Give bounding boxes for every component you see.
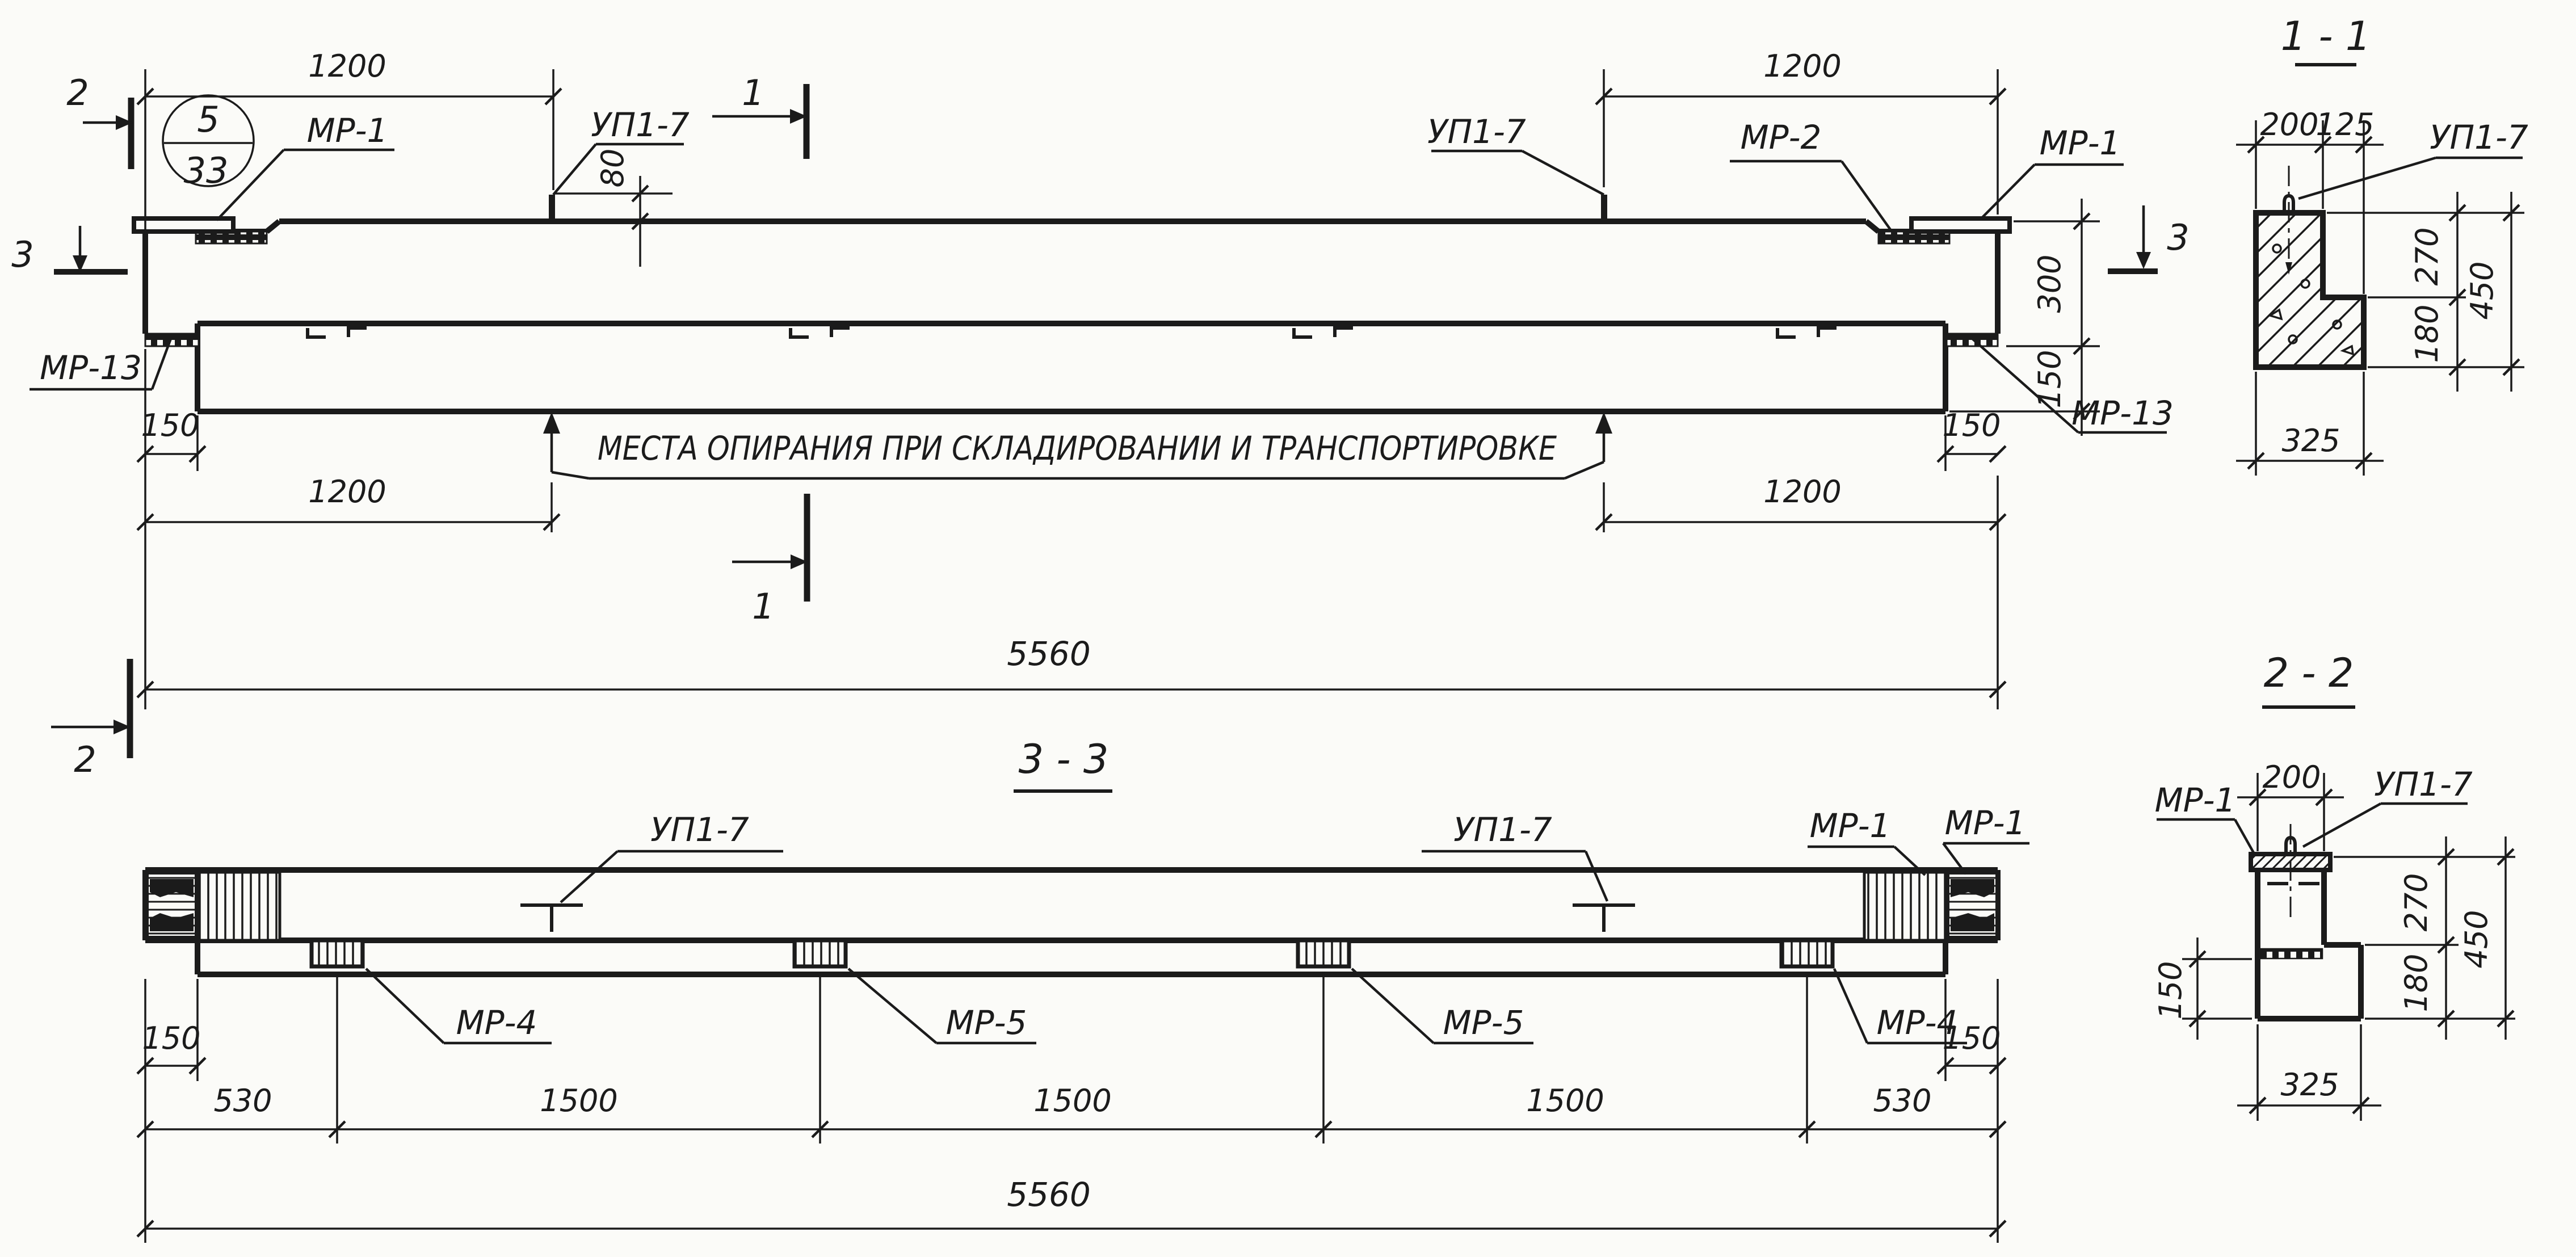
label-mr1-plan-a: МР-1: [1808, 806, 1925, 875]
dim-150-bottom-left: 150: [137, 407, 205, 471]
storage-note: МЕСТА ОПИРАНИЯ ПРИ СКЛАДИРОВАНИИ И ТРАНС…: [589, 429, 1565, 478]
svg-text:150: 150: [2032, 350, 2067, 408]
girder-drawing-canvas: 5 33 2 2 1 1: [0, 0, 2576, 1257]
label-mr1-top-left: МР-1: [217, 111, 394, 220]
label-mr1-s22: МР-1: [2155, 781, 2255, 856]
section-marker-3-right: 3: [2108, 205, 2190, 271]
svg-text:5560: 5560: [1007, 634, 1091, 673]
svg-text:150: 150: [142, 1020, 200, 1056]
dim-5560-elevation: 5560: [137, 634, 2006, 697]
svg-text:530: 530: [213, 1083, 272, 1119]
section-1-1-body: [2256, 213, 2364, 367]
dim-325-s22: 325: [2237, 1024, 2381, 1121]
svg-text:200: 200: [2262, 759, 2321, 795]
mr13-strip-s22: [2260, 949, 2322, 958]
svg-text:200: 200: [2260, 107, 2318, 142]
svg-text:450: 450: [2459, 910, 2494, 968]
dim-1200-under-left: 1200: [137, 349, 560, 709]
lifting-loop-left: [549, 195, 555, 221]
svg-text:1200: 1200: [1763, 48, 1841, 84]
dim-150-bottom-right: 150: [1938, 407, 2006, 471]
support-point-left: [543, 412, 589, 478]
svg-text:150: 150: [141, 407, 199, 443]
svg-text:1500: 1500: [1526, 1083, 1604, 1119]
mr5-block-right: [1298, 940, 1349, 966]
svg-text:150: 150: [2153, 961, 2188, 1019]
svg-text:180: 180: [2409, 304, 2445, 363]
svg-text:325: 325: [2281, 423, 2340, 459]
svg-text:180: 180: [2398, 953, 2434, 1012]
label-mr1-top-right: МР-1: [1982, 124, 2124, 218]
svg-text:УП1-7: УП1-7: [591, 106, 690, 144]
svg-text:МР-1: МР-1: [1945, 804, 2026, 842]
section-1-1-title: 1 - 1: [2281, 13, 2371, 65]
mark-top: 5: [197, 99, 219, 140]
section-1-1-view: 1 - 1 200 125 УП1-7: [2236, 13, 2528, 476]
mr1-plate-right: [1911, 218, 2010, 232]
elevation-view: 5 33 2 2 1 1: [11, 48, 2189, 780]
dim-150-s22: 150: [2153, 938, 2252, 1040]
dim-150-plan-left: 150: [137, 979, 205, 1243]
label-mr2-top-right: МР-2: [1730, 118, 1891, 230]
svg-text:МР-5: МР-5: [1443, 1003, 1524, 1042]
label-mr5-right: МР-5: [1352, 969, 1533, 1043]
section-marker-1-bottom: 1: [732, 494, 808, 627]
svg-text:1200: 1200: [308, 48, 386, 84]
svg-text:325: 325: [2280, 1067, 2339, 1103]
svg-text:1200: 1200: [308, 474, 386, 510]
svg-text:1500: 1500: [540, 1083, 617, 1119]
svg-text:270: 270: [2398, 873, 2434, 931]
label-up17-top-right: УП1-7: [1427, 112, 1604, 195]
section-marker-1-top: 1: [712, 72, 807, 159]
label-mr4-left: МР-4: [366, 969, 552, 1043]
mr4-block-right: [1781, 940, 1833, 966]
section-3-3-view: 3 - 3: [137, 736, 2029, 1243]
mark-bottom: 33: [184, 150, 229, 191]
svg-text:450: 450: [2464, 261, 2500, 319]
section-2-2-title: 2 - 2: [2262, 650, 2355, 707]
plan-outline: [145, 870, 1998, 974]
dim-325-s11: 325: [2236, 372, 2384, 476]
svg-text:3 - 3: 3 - 3: [1019, 736, 1109, 783]
marker-digit: 1: [742, 72, 764, 113]
storage-note-text: МЕСТА ОПИРАНИЯ ПРИ СКЛАДИРОВАНИИ И ТРАНС…: [598, 429, 1557, 468]
svg-text:1 - 1: 1 - 1: [2281, 13, 2371, 60]
svg-text:МР-1: МР-1: [307, 111, 388, 150]
section-3-3-title: 3 - 3: [1014, 736, 1112, 791]
section-2-2-body: [2258, 870, 2361, 1019]
svg-text:530: 530: [1873, 1083, 1931, 1119]
svg-text:УП1-7: УП1-7: [1453, 810, 1552, 849]
drawing-sheet: 5 33 2 2 1 1: [0, 0, 2576, 1257]
mr5-block-left: [795, 940, 846, 966]
svg-text:1200: 1200: [1763, 474, 1841, 510]
label-up17-plan-left: УП1-7: [561, 810, 783, 902]
label-up17-s22: УП1-7: [2303, 765, 2473, 847]
svg-text:УП1-7: УП1-7: [2374, 765, 2473, 804]
svg-text:150: 150: [1942, 1020, 2001, 1056]
svg-text:МР-4: МР-4: [456, 1003, 537, 1042]
marker-digit: 2: [74, 739, 96, 780]
label-mr5-left: МР-5: [848, 969, 1036, 1043]
svg-text:80: 80: [595, 149, 631, 188]
svg-text:270: 270: [2409, 227, 2445, 285]
dim-row-530-1500: 530 1500 1500 1500 530: [137, 972, 2006, 1144]
marker-digit: 3: [2167, 217, 2189, 258]
loop-mark-right: [1573, 905, 1635, 932]
dim-5560-plan: 5560: [137, 1175, 2006, 1237]
marker-digit: 1: [752, 586, 774, 627]
end-key-right: [1864, 872, 1998, 940]
marker-digit: 3: [11, 234, 33, 275]
marker-digit: 2: [66, 72, 89, 113]
label-mr1-plan-b: МР-1: [1943, 804, 2029, 874]
section-2-2-view: 2 - 2 МР-1 УП1-7: [2153, 650, 2515, 1121]
svg-text:МР-13: МР-13: [2071, 394, 2174, 432]
svg-text:МР-2: МР-2: [1741, 118, 1822, 157]
svg-text:1500: 1500: [1033, 1083, 1111, 1119]
mr13-plate-left: [145, 334, 199, 346]
piece-mark-circle: 5 33: [163, 95, 254, 191]
end-key-left: [146, 872, 280, 940]
svg-text:300: 300: [2032, 254, 2067, 313]
svg-text:2 - 2: 2 - 2: [2264, 650, 2354, 696]
loop-mark-left: [520, 905, 583, 932]
svg-text:МР-1: МР-1: [2155, 781, 2236, 819]
clip-details: [308, 328, 1837, 337]
support-point-right: [1565, 412, 1612, 478]
svg-text:5560: 5560: [1007, 1175, 1091, 1214]
svg-text:МР-1: МР-1: [1810, 806, 1891, 845]
svg-text:УП1-7: УП1-7: [2430, 118, 2528, 157]
svg-text:УП1-7: УП1-7: [650, 810, 749, 849]
label-up17-plan-right: УП1-7: [1422, 810, 1607, 901]
label-mr13-right: МР-13: [1970, 337, 2174, 432]
section-marker-3-left: 3: [11, 226, 128, 275]
svg-text:МР-13: МР-13: [40, 348, 142, 387]
svg-text:МР-1: МР-1: [2040, 124, 2121, 162]
svg-text:125: 125: [2316, 107, 2374, 142]
dim-1200-under-right: 1200: [1596, 474, 2006, 709]
svg-text:150: 150: [1942, 407, 2001, 443]
lifting-loop-right: [1601, 195, 1607, 221]
section-marker-2-bottom: 2: [51, 659, 131, 780]
section-marker-2-top: 2: [66, 72, 133, 169]
svg-text:МР-5: МР-5: [946, 1003, 1027, 1042]
mr1-plate-left: [134, 218, 233, 232]
mr4-block-left: [312, 940, 363, 966]
beam-outline: [145, 221, 1998, 411]
svg-text:УП1-7: УП1-7: [1427, 112, 1526, 151]
dim-80-loop-height: 80: [555, 149, 673, 267]
